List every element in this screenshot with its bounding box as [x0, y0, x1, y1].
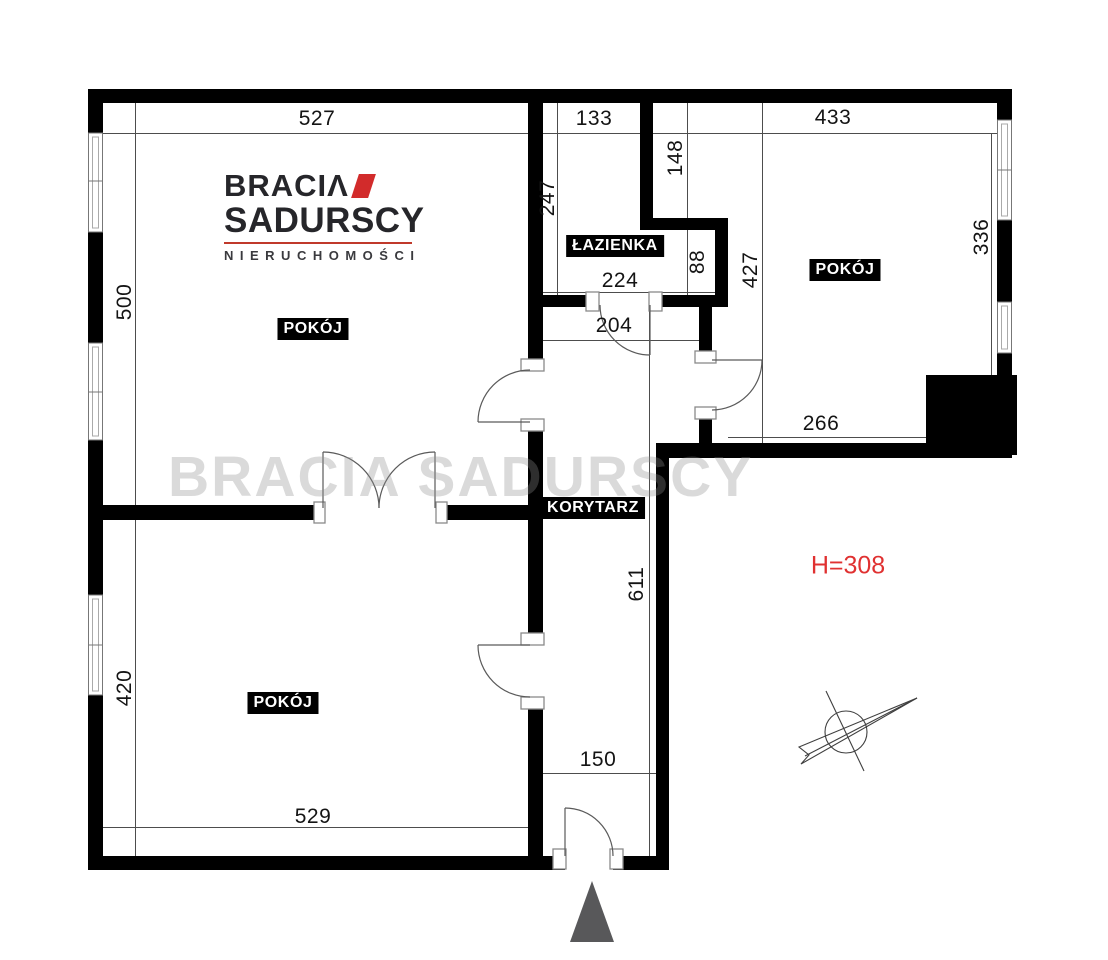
entrance-marker-icon [570, 881, 614, 942]
dim-529: 529 [295, 805, 332, 829]
dim-line-left-vertical [135, 103, 136, 857]
dim-266: 266 [803, 412, 840, 436]
dim-611: 611 [625, 567, 649, 602]
dim-line-150 [543, 773, 656, 774]
wall-bathroom-bottom-a [528, 295, 594, 307]
brand-name-top: BRACIΛ [224, 170, 349, 203]
wall-bathroom-bottom-b [655, 295, 728, 307]
brand-divider [224, 242, 412, 244]
dim-336: 336 [970, 219, 994, 256]
room-label-top-left: POKÓJ [277, 318, 348, 340]
room-label-bathroom: ŁAZIENKA [566, 235, 664, 257]
dim-433: 433 [815, 106, 852, 130]
brand-watermark: BRACIA SADURSCY [168, 444, 753, 510]
ceiling-height-note: H=308 [811, 552, 885, 581]
brand-tagline: NIERUCHOMOŚCI [224, 248, 424, 263]
dim-420: 420 [113, 670, 137, 707]
dim-88: 88 [686, 250, 710, 274]
room-label-bottom-left: POKÓJ [247, 692, 318, 714]
dim-247: 247 [536, 180, 560, 217]
wall-corridor-left-c [528, 705, 543, 870]
floor-plan: BRACIΛ SADURSCY NIERUCHOMOŚCI ŁAZIENKA P… [0, 0, 1108, 960]
dim-150: 150 [580, 748, 617, 772]
wall-block-shaft [926, 375, 1017, 455]
dim-527: 527 [299, 107, 336, 131]
dim-204: 204 [596, 314, 633, 338]
wall-bathroom-right-upper [640, 103, 653, 221]
dim-line-266 [728, 437, 926, 438]
wall-corridor-right-upper-a [699, 295, 712, 355]
wall-corridor-left-a [528, 103, 543, 365]
dim-224: 224 [602, 269, 639, 293]
room-label-right: POKÓJ [809, 259, 880, 281]
wall-left [88, 89, 103, 870]
dim-line-top [103, 133, 997, 134]
dim-500: 500 [113, 284, 137, 321]
brand-mark-icon [351, 174, 376, 198]
dim-427: 427 [739, 252, 763, 289]
dim-line-204 [543, 340, 699, 341]
dim-133: 133 [576, 107, 613, 131]
wall-bathroom-nook-right [715, 218, 728, 307]
brand-logo: BRACIΛ SADURSCY NIERUCHOMOŚCI [224, 170, 424, 263]
brand-name-bottom: SADURSCY [224, 203, 424, 240]
dim-148: 148 [664, 140, 688, 177]
wall-top [88, 89, 1012, 103]
north-arrow-icon [799, 691, 917, 771]
wall-bottom-left-segment [88, 856, 565, 870]
